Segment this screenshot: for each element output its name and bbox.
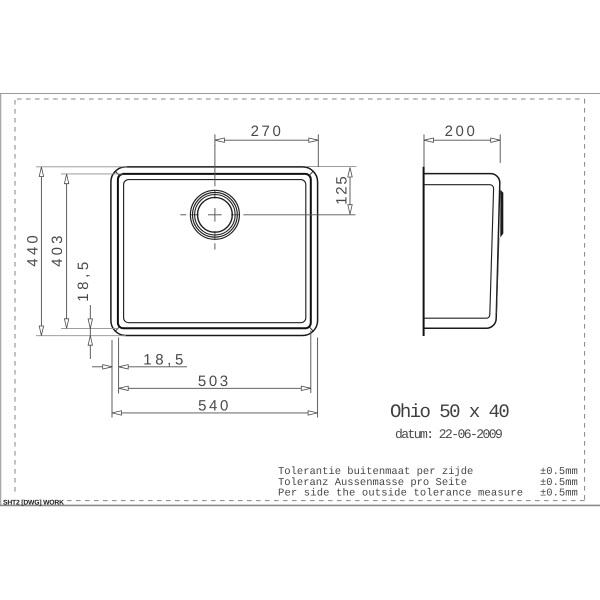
svg-text:440: 440 <box>24 232 41 267</box>
svg-text:503: 503 <box>198 373 231 390</box>
svg-text:datum: 22-06-2009: datum: 22-06-2009 <box>395 427 502 442</box>
svg-text:200: 200 <box>445 123 478 140</box>
svg-text:270: 270 <box>251 123 284 140</box>
svg-text:±0.5mm: ±0.5mm <box>540 488 578 500</box>
svg-text:18,5: 18,5 <box>75 258 92 302</box>
svg-text:403: 403 <box>49 232 66 267</box>
svg-text:125: 125 <box>334 174 351 204</box>
svg-text:Ohio 50 x 40: Ohio 50 x 40 <box>390 401 509 423</box>
svg-text:Per side the outside tolerance: Per side the outside tolerance measure <box>278 488 523 500</box>
svg-text:540: 540 <box>198 398 231 415</box>
svg-text:18,5: 18,5 <box>143 351 187 368</box>
svg-text:SHT2 [DWG] WORK: SHT2 [DWG] WORK <box>3 500 64 507</box>
